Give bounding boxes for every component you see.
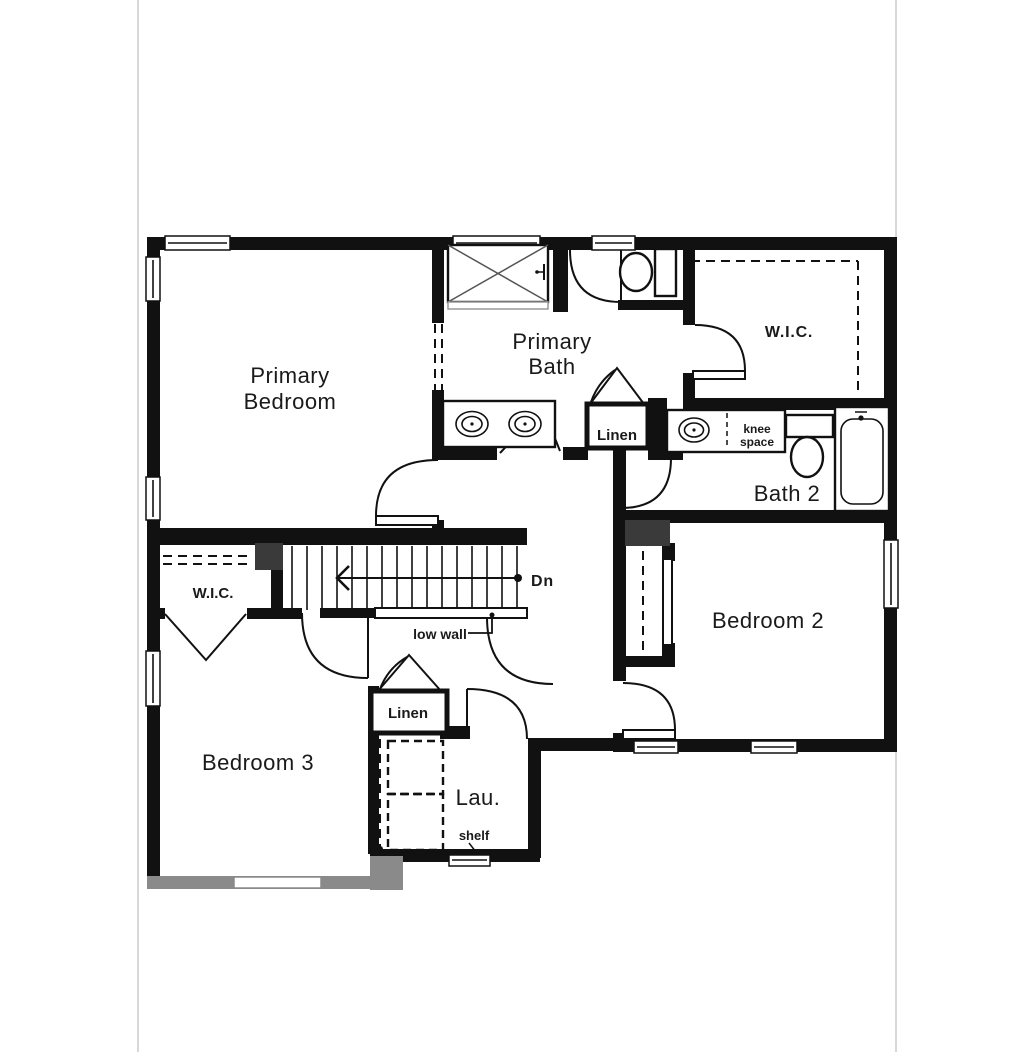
toilet-room-door xyxy=(570,250,621,302)
linen-lower-label: Linen xyxy=(388,705,428,722)
double-vanity xyxy=(443,401,555,447)
primary-bedroom-label: Primary xyxy=(250,363,329,388)
window xyxy=(751,741,797,753)
wic-left-label: W.I.C. xyxy=(193,585,234,602)
window xyxy=(234,877,321,888)
staircase xyxy=(292,546,527,618)
floorplan-page: Primary Bedroom Primary Bath W.I.C. W.I.… xyxy=(0,0,1024,1052)
closet-dash-lines xyxy=(163,261,858,652)
toilet-bath2 xyxy=(786,415,833,477)
toilet-primary xyxy=(620,249,676,296)
bathtub xyxy=(835,407,889,511)
window xyxy=(449,855,490,866)
shower xyxy=(448,245,548,309)
bedroom2-label: Bedroom 2 xyxy=(712,608,824,633)
bath2-door xyxy=(621,458,671,508)
linen-upper-door xyxy=(590,368,644,404)
linen-upper-label: Linen xyxy=(597,427,637,444)
primary-bath-label: Primary xyxy=(512,329,591,354)
window xyxy=(592,236,635,250)
window xyxy=(146,477,160,520)
shelf-label: shelf xyxy=(459,828,490,843)
low-wall xyxy=(375,608,527,618)
low-wall-label: low wall xyxy=(413,626,467,642)
bedroom3-label: Bedroom 3 xyxy=(202,750,314,775)
wic-right-label: W.I.C. xyxy=(765,324,813,341)
primary-bedroom-label2: Bedroom xyxy=(244,389,337,414)
stairs-down-label: Dn xyxy=(531,573,554,590)
wic-left-door xyxy=(165,614,246,660)
bath2-label: Bath 2 xyxy=(754,481,821,506)
knee-space-label2: space xyxy=(740,435,774,449)
knee-space-label: knee xyxy=(743,422,771,436)
window xyxy=(634,741,678,753)
room-labels: Primary Bedroom Primary Bath W.I.C. W.I.… xyxy=(193,324,824,810)
bedroom2-closet-slider xyxy=(663,559,672,645)
floorplan-drawing: Primary Bedroom Primary Bath W.I.C. W.I.… xyxy=(0,0,1024,1052)
primary-bath-label2: Bath xyxy=(528,354,575,379)
washer-dryer xyxy=(377,739,443,852)
wic-right-door xyxy=(693,325,745,379)
window xyxy=(146,257,160,301)
stairs-down-arrow xyxy=(337,566,522,590)
page-borders xyxy=(138,0,896,1052)
primary-bedroom-door xyxy=(376,460,438,525)
laundry-door xyxy=(467,689,527,739)
bedroom2-door xyxy=(623,683,675,739)
linen-lower-door xyxy=(378,655,441,691)
window xyxy=(165,236,230,250)
hall-door xyxy=(487,617,553,684)
window xyxy=(146,651,160,706)
bedroom3-door xyxy=(302,612,368,678)
window xyxy=(884,540,898,608)
laundry-label: Lau. xyxy=(456,785,501,810)
